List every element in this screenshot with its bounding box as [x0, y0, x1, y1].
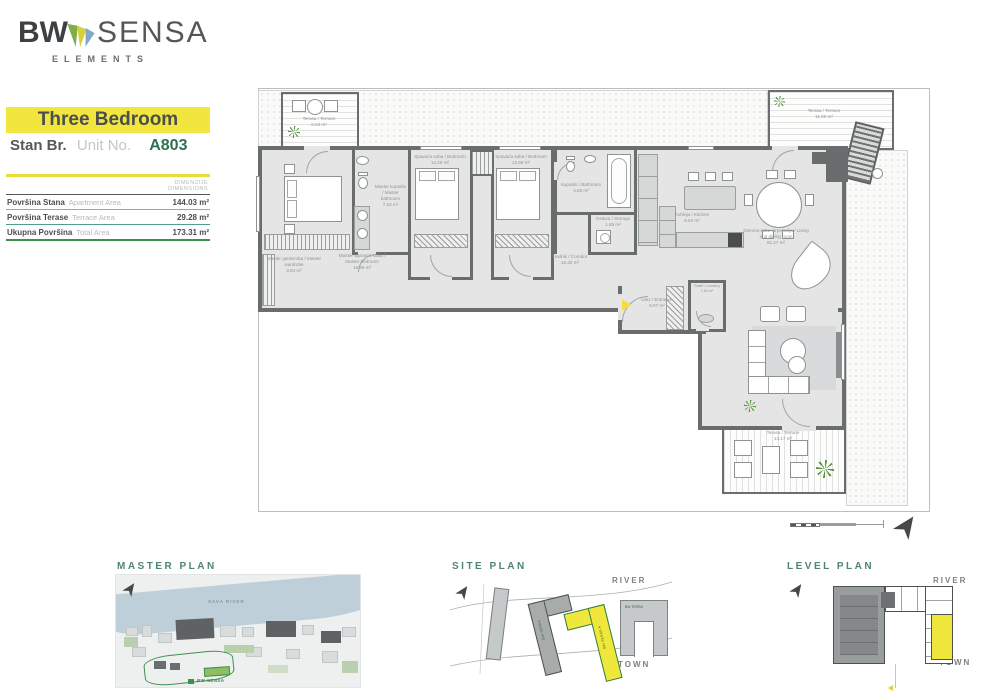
brochure-page: BW SENSA ELEMENTS Three Bedroom Stan Br.… [0, 0, 1000, 692]
door-opening [509, 277, 533, 280]
green-area [268, 665, 288, 673]
plant-icon [744, 400, 756, 412]
chair [805, 194, 814, 206]
window [841, 324, 845, 380]
sofa [748, 376, 810, 394]
kitchen-tall-units [638, 154, 658, 246]
shaft-block [812, 152, 828, 164]
city-block [154, 661, 166, 669]
dining-table [756, 182, 802, 228]
toilet [358, 172, 368, 176]
master-plan-map: SAVA RIVER BW SENSA [115, 574, 361, 688]
logo-sensa-text: SENSA [97, 16, 209, 50]
plant-icon [816, 460, 834, 478]
nightstand [284, 164, 295, 174]
room-area: 11.60 m² [788, 114, 860, 120]
wardrobe [264, 234, 350, 250]
nightstand [284, 224, 295, 234]
wall-segment [588, 252, 637, 255]
bw-sensa-marker-icon [188, 679, 194, 684]
scale-bar [856, 524, 884, 525]
sink [356, 156, 369, 165]
city-block [176, 618, 215, 640]
basin [357, 228, 368, 239]
bar-stool [722, 172, 733, 181]
room-area: 61.27 m² [742, 240, 810, 246]
green-area [342, 661, 358, 673]
city-block [158, 633, 172, 643]
city-block [126, 627, 138, 636]
header-en: DIMENSIONS [168, 186, 208, 192]
armchair [786, 306, 806, 322]
city-block [342, 627, 356, 637]
leaf-icon [69, 20, 95, 48]
room-area: 16.32 m² [548, 260, 592, 266]
room-area: 16.99 m² [332, 265, 392, 271]
river-label: RIVER [933, 576, 967, 585]
city-block [220, 625, 236, 637]
room-area: 12.68 m² [489, 160, 553, 166]
city-block [286, 649, 300, 659]
room-label-corridor: Hodnik / Corridor16.32 m² [548, 254, 592, 266]
room-name: Master spavaća soba / Master bedroom [332, 253, 392, 265]
plant-icon [774, 96, 785, 107]
room-label-terrace-tl: Terasa / Terrace6.03 m² [288, 116, 350, 128]
toilet [358, 177, 368, 189]
town-label: TOWN [618, 660, 650, 669]
bed [284, 176, 342, 222]
washing-machine [596, 230, 611, 244]
room-label-terrace-b: Terasa / Terrace13.17 m² [740, 430, 826, 442]
terrace-chair [734, 462, 752, 478]
room-label-kitchen: Kuhinja / Kitchen8.94 m² [668, 212, 716, 224]
row-label-sr: Površina Terase [7, 213, 68, 222]
room-name: Master kupatilo / Master bathroom [374, 184, 407, 202]
room-name: Toalet / Lavatory [690, 284, 724, 289]
room-label-master-wardrobe: Master garderoba / Master wardrobe3.94 m… [266, 256, 322, 274]
city-block [302, 625, 314, 635]
room-label-bedroom-1: Spavaća soba / Bedroom12.26 m² [408, 154, 472, 166]
city-block [132, 647, 146, 657]
highlighted-block [204, 666, 231, 677]
door-opening [430, 277, 452, 280]
row-label-sr: Površina Stana [7, 198, 65, 207]
stan-label: Stan Br. [10, 137, 67, 154]
room-area: 6.03 m² [288, 122, 350, 128]
site-building-u: BW TERRA [620, 600, 668, 656]
level-wing-dark [833, 586, 885, 664]
bed [496, 168, 540, 220]
terrace-table [872, 168, 883, 179]
chair [784, 170, 796, 179]
room-area: 8.94 m² [668, 218, 716, 224]
bed [415, 168, 459, 220]
wall-segment [452, 277, 473, 280]
brand-logo: BW SENSA [18, 16, 209, 50]
room-label-master-bedroom: Master spavaća soba / Master bedroom16.9… [332, 253, 392, 271]
bar-stool [688, 172, 699, 181]
toilet [566, 161, 575, 172]
green-area [224, 645, 254, 653]
sofa [748, 330, 766, 380]
chair [744, 194, 753, 206]
room-area: 7.22 m² [374, 202, 407, 208]
shaft-block [826, 146, 848, 182]
room-area: 1.80 m² [690, 289, 724, 294]
level-building [833, 586, 953, 664]
room-name: Dnevna soba i trpezarija / Living and di… [742, 228, 810, 240]
table-row: Površina Terase Terrace Area 29.28 m² [6, 210, 210, 225]
room-label-wc: Toalet / Lavatory1.80 m² [690, 284, 724, 293]
level-plan-title: LEVEL PLAN [787, 561, 874, 572]
room-area: 6.07 m² [632, 303, 682, 309]
tv-panel [836, 332, 841, 378]
room-label-master-bathroom: Master kupatilo / Master bathroom7.22 m² [374, 184, 407, 208]
north-arrow-icon [789, 581, 805, 598]
kitchen-island [684, 186, 736, 210]
logo-bw-text: BW [18, 16, 68, 50]
unit-leader-line [895, 664, 896, 688]
row-label-en: Terrace Area [72, 213, 115, 222]
coffee-table [788, 356, 806, 374]
room-label-bedroom-2: Spavaća soba / Bedroom12.68 m² [489, 154, 553, 166]
row-value: 29.28 m² [177, 213, 209, 222]
unit-type-banner: Three Bedroom [6, 107, 210, 133]
wall-segment [533, 277, 554, 280]
dimensions-table-header: DIMENZIJE DIMENSIONS [6, 179, 210, 195]
site-plan-title: SITE PLAN [452, 561, 527, 572]
wall-segment [408, 150, 411, 280]
brand-tagline: ELEMENTS [52, 54, 149, 64]
terrace-table [762, 446, 780, 474]
terrace-chair [324, 100, 338, 112]
scale-bar [820, 523, 856, 526]
terrace-chair [292, 100, 306, 112]
room-area: 13.17 m² [740, 436, 826, 442]
bar-stool [705, 172, 716, 181]
wall-segment [408, 277, 430, 280]
window [499, 146, 541, 150]
room-label-bathroom: Kupatilo / Bathroom4.88 m² [558, 182, 604, 194]
unit-type-label: Three Bedroom [38, 109, 178, 131]
armchair [760, 306, 780, 322]
wardrobe [414, 234, 468, 248]
sink [584, 155, 596, 163]
room-label-living-dining: Dnevna soba i trpezarija / Living and di… [742, 228, 810, 246]
room-label-terrace-tr: Terasa / Terrace11.60 m² [788, 108, 860, 120]
window [420, 146, 462, 150]
master-plan-title: MASTER PLAN [117, 561, 217, 572]
window [688, 146, 714, 150]
window [256, 176, 260, 232]
wall-segment [588, 212, 591, 255]
room-label-storage: Ostava / Storage1.85 m² [592, 216, 634, 228]
terrace-chair [734, 440, 752, 456]
unit-number-row: Stan Br. Unit No. A803 [10, 137, 210, 155]
room-name: Master garderoba / Master wardrobe [266, 256, 322, 268]
wall-segment [634, 150, 637, 255]
gravel-strip-right [846, 150, 908, 506]
city-block [266, 621, 296, 637]
bw-sensa-label: BW SENSA [197, 678, 224, 683]
toilet [566, 156, 575, 160]
city-block [321, 631, 341, 643]
wall-segment [491, 277, 509, 280]
level-core [881, 592, 895, 608]
terrace-chair [790, 462, 808, 478]
room-label-entrance: Ulaz / Entrance6.07 m² [632, 297, 682, 309]
north-arrow-icon [893, 511, 921, 540]
dimensions-table: DIMENZIJE DIMENSIONS Površina Stana Apar… [6, 174, 210, 241]
entrance-arrow-icon [622, 299, 631, 311]
row-label-en: Apartment Area [69, 198, 121, 207]
unit-leader-arrow-icon [888, 685, 893, 691]
cooktop [728, 233, 742, 247]
row-value: 144.03 m² [173, 198, 209, 207]
room-area: 4.88 m² [558, 188, 604, 194]
row-label-sr: Ukupna Površina [7, 228, 72, 237]
city-block [322, 651, 338, 663]
unit-no-label: Unit No. [77, 137, 131, 154]
unit-number: A803 [149, 137, 187, 154]
table-row: Površina Stana Apartment Area 144.03 m² [6, 195, 210, 210]
river-label: SAVA RIVER [208, 599, 245, 604]
level-highlighted-unit [931, 614, 953, 660]
scale-bar-tick [883, 520, 884, 528]
bathtub [607, 154, 631, 208]
basin [357, 210, 368, 221]
terrace-chair [790, 440, 808, 456]
site-plan-map: RIVER TOWN BW SENSA BW SENSA A BW TERRA [450, 574, 672, 690]
door-opening [696, 327, 709, 331]
city-block [242, 627, 254, 637]
green-area [124, 637, 138, 647]
room-area: 1.85 m² [592, 222, 634, 228]
building-label: BW TERRA [625, 605, 643, 609]
city-block [170, 663, 180, 670]
scale-bar [790, 523, 820, 527]
door-opening [772, 146, 798, 151]
wall-segment [554, 212, 637, 215]
terrace-table [307, 99, 323, 115]
room-area: 12.26 m² [408, 160, 472, 166]
river-label: RIVER [612, 576, 646, 585]
room-area: 3.94 m² [266, 268, 322, 274]
city-block [142, 625, 152, 637]
chair [766, 170, 778, 179]
level-plan-map: RIVER TOWN [785, 574, 1000, 692]
row-label-en: Total Area [76, 228, 109, 237]
row-value: 173.31 m² [173, 228, 209, 237]
wardrobe [495, 234, 549, 248]
table-row: Ukupna Površina Total Area 173.31 m² [6, 225, 210, 241]
